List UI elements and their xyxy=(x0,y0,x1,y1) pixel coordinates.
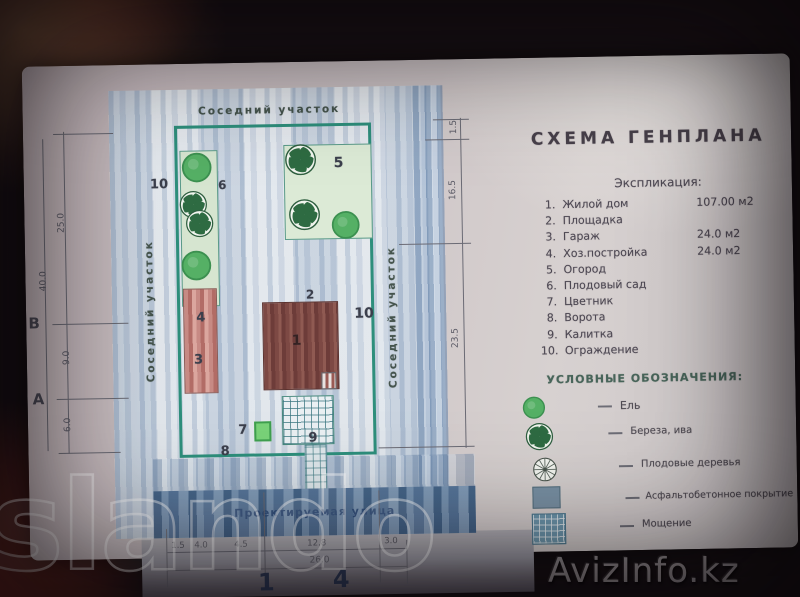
item-area xyxy=(697,210,789,228)
plan-label-platform: 2 xyxy=(306,287,315,301)
flowerbed xyxy=(254,421,271,441)
item-number: 5. xyxy=(539,263,563,280)
item-number: 7. xyxy=(540,295,564,312)
dim-line xyxy=(460,118,467,448)
plan-label-garage: 3 xyxy=(194,352,203,367)
legend-dash xyxy=(608,432,622,434)
item-number: 10. xyxy=(541,344,565,361)
photo-of-site-plan: Соседний участок Соседний участок Соседн… xyxy=(0,0,800,597)
legend-label: Береза, ива xyxy=(630,425,692,437)
asphalt-legend-icon xyxy=(532,486,560,508)
explication-heading: Экспликация: xyxy=(558,174,758,191)
fruit-tree-icon xyxy=(287,197,322,232)
dim-value: 25.0 xyxy=(56,208,67,238)
legend-heading: УСЛОВНЫЕ ОБОЗНАЧЕНИЯ: xyxy=(546,370,766,387)
item-number: 4. xyxy=(539,247,563,264)
legend-dash xyxy=(620,525,634,527)
item-area xyxy=(699,324,791,342)
explication-list: 1. Жилой дом 107.00 м2 2. Площадка 3. Га… xyxy=(538,194,791,360)
fruit-tree-legend-icon xyxy=(532,456,558,482)
garage-building xyxy=(183,288,219,394)
avizinfo-watermark: AvizInfo.kz xyxy=(548,551,740,591)
item-number: 9. xyxy=(541,328,565,345)
legend-label: Ель xyxy=(620,399,641,412)
spruce-tree-icon xyxy=(180,151,213,184)
plan-label-house: 1 xyxy=(292,333,302,349)
axis-letter-a: А xyxy=(33,390,45,408)
legend-dash xyxy=(626,497,640,499)
item-area xyxy=(699,340,791,358)
plan-label-outbuilding: 4 xyxy=(196,310,205,325)
item-area xyxy=(698,308,790,326)
spruce-tree-icon xyxy=(330,210,361,241)
item-area: 24.0 м2 xyxy=(697,243,789,261)
fruit-tree-icon xyxy=(283,142,318,177)
neighbor-plot-label-left: Соседний участок xyxy=(143,262,157,382)
plan-label-fence-left: 10 xyxy=(150,177,168,192)
house-porch xyxy=(321,372,336,389)
item-area xyxy=(697,259,789,277)
dim-line xyxy=(63,132,70,454)
explication-row: 10. Ограждение xyxy=(541,340,791,361)
neighbor-plot-label-right: Соседний участок xyxy=(385,268,399,388)
page-title: СХЕМА ГЕНПЛАНА xyxy=(515,125,781,150)
plan-label-fence-right: 10 xyxy=(354,305,374,321)
dim-tick xyxy=(425,139,469,141)
axis-letter-b: В xyxy=(28,314,40,332)
dim-value: 16.5 xyxy=(448,175,459,205)
dim-value: 1.5 xyxy=(449,112,460,142)
item-area: 24.0 м2 xyxy=(697,227,789,245)
item-area xyxy=(698,275,790,293)
spruce-tree-icon xyxy=(180,249,213,282)
legend-label: Мощение xyxy=(642,518,692,530)
slando-watermark: slando xyxy=(0,455,434,597)
item-name: Ограждение xyxy=(565,341,699,360)
item-number: 6. xyxy=(540,279,564,296)
legend-dash xyxy=(598,405,612,407)
legend-label: Плодовые деревья xyxy=(641,457,741,470)
dim-tick xyxy=(59,452,121,454)
item-number: 8. xyxy=(540,311,564,328)
legend-label: Асфальтобетонное покрытие xyxy=(645,488,793,502)
item-number: 1. xyxy=(538,198,562,215)
item-number: 2. xyxy=(539,214,563,231)
dim-tick xyxy=(53,133,113,135)
item-number: 3. xyxy=(539,231,563,248)
dim-value: 6.0 xyxy=(63,410,74,440)
item-area: 107.00 м2 xyxy=(696,194,788,212)
item-area xyxy=(698,291,790,309)
birch-willow-legend-icon xyxy=(524,421,555,452)
birch-tree-icon xyxy=(184,208,215,239)
spruce-legend-icon xyxy=(522,395,546,419)
legend-dash xyxy=(619,465,633,467)
dim-value: 9.0 xyxy=(62,343,73,373)
dim-total: 40.0 xyxy=(38,266,49,296)
plan-label-wicket: 9 xyxy=(308,430,317,445)
dim-value: 23.5 xyxy=(450,323,461,353)
plan-label-flowerbed: 7 xyxy=(238,423,247,438)
plan-label-garden: 5 xyxy=(333,155,343,171)
paving-legend-icon xyxy=(532,513,567,545)
plan-label-orchard: 6 xyxy=(218,178,227,192)
